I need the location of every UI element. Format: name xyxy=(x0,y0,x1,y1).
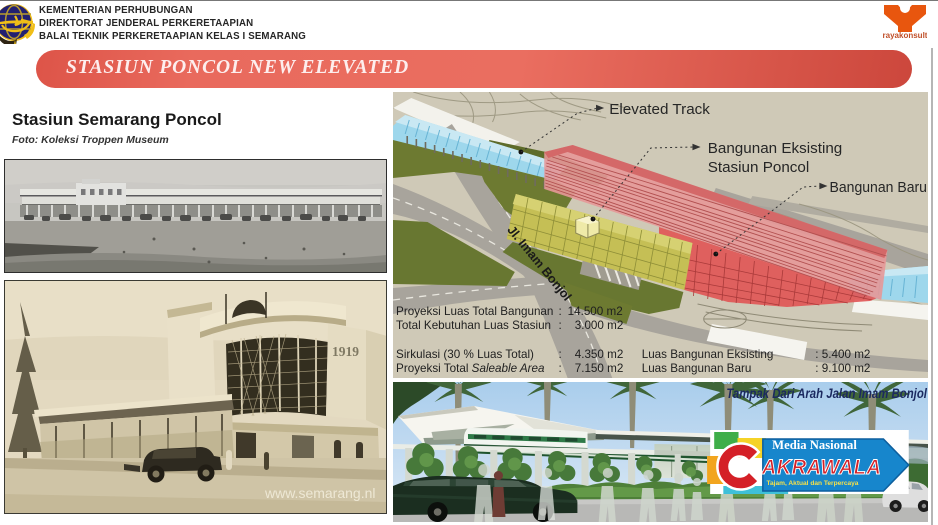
svg-text::: : xyxy=(558,349,561,361)
svg-text:4.350 m2: 4.350 m2 xyxy=(575,349,624,361)
svg-text:rayakonsult: rayakonsult xyxy=(883,31,927,40)
svg-text:Stasiun Poncol: Stasiun Poncol xyxy=(708,159,810,176)
svg-text:Total Kebutuhan Luas Stasiun: Total Kebutuhan Luas Stasiun xyxy=(396,320,551,332)
svg-text:Proyeksi Total Saleable Area: Proyeksi Total Saleable Area xyxy=(396,363,545,375)
svg-text:7.150 m2: 7.150 m2 xyxy=(575,363,624,375)
svg-text:Tajam, Aktual dan Terpercaya: Tajam, Aktual dan Terpercaya xyxy=(767,480,859,487)
svg-text:Media Nasional: Media Nasional xyxy=(772,438,857,452)
svg-text::: : xyxy=(558,320,561,332)
svg-text:Sirkulasi (30 % Luas Total): Sirkulasi (30 % Luas Total) xyxy=(396,349,534,361)
svg-text:Luas Bangunan Eksisting: Luas Bangunan Eksisting xyxy=(642,349,774,361)
svg-text:Elevated Track: Elevated Track xyxy=(609,101,710,118)
svg-text:Tampak Dari Arah Jalan Imam Bo: Tampak Dari Arah Jalan Imam Bonjol xyxy=(726,386,927,401)
svg-text:AKRAWALA: AKRAWALA xyxy=(761,456,882,479)
svg-text:Proyeksi Luas Total Bangunan: Proyeksi Luas Total Bangunan xyxy=(396,306,553,318)
svg-text:: 9.100 m2: : 9.100 m2 xyxy=(815,363,870,375)
svg-text:Bangunan Eksisting: Bangunan Eksisting xyxy=(708,140,843,157)
svg-text:Luas Bangunan Baru: Luas Bangunan Baru xyxy=(642,363,752,375)
svg-text::: : xyxy=(558,363,561,375)
svg-text:3.000 m2: 3.000 m2 xyxy=(575,320,624,332)
svg-text:www.semarang.nl: www.semarang.nl xyxy=(264,485,376,501)
svg-text:Bangunan Baru: Bangunan Baru xyxy=(830,180,927,196)
svg-text::: : xyxy=(558,306,561,318)
svg-text:1919: 1919 xyxy=(332,345,359,360)
svg-text:14.500 m2: 14.500 m2 xyxy=(568,306,623,318)
svg-text:: 5.400 m2: : 5.400 m2 xyxy=(815,349,870,361)
